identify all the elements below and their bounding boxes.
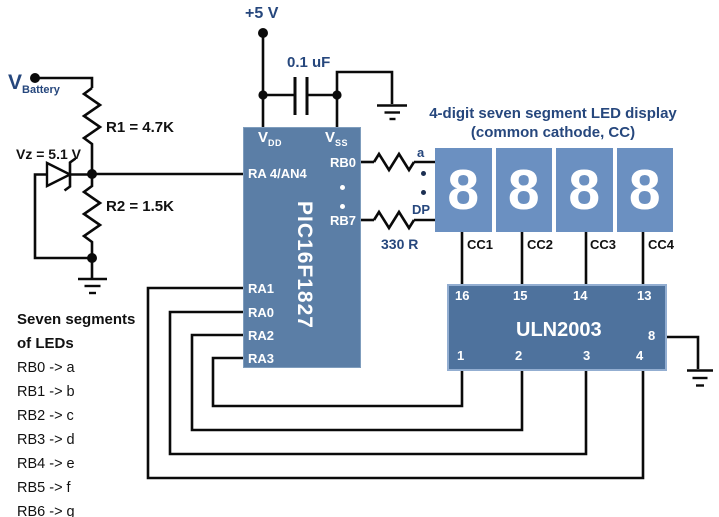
divider-mid-junction-dot bbox=[87, 169, 97, 179]
capacitor-icon bbox=[295, 77, 307, 115]
display-title-line2: (common cathode, CC) bbox=[428, 123, 678, 142]
zener-anode-lead bbox=[35, 175, 92, 259]
zener-label: Vz = 5.1 V bbox=[16, 146, 81, 162]
uln-pin-1: 1 bbox=[457, 348, 464, 363]
plus5v-node-dot bbox=[258, 28, 268, 38]
zener-diode-icon bbox=[47, 159, 92, 191]
segment-ellipsis-dot bbox=[421, 190, 426, 195]
legend-block: Seven segments of LEDs RB0 -> a RB1 -> b… bbox=[17, 308, 135, 517]
divider-bottom-junction-dot bbox=[87, 253, 97, 263]
uln-pin-8: 8 bbox=[648, 328, 655, 343]
uln-pin-13: 13 bbox=[637, 288, 651, 303]
ground-icon-divider bbox=[78, 279, 107, 293]
pic-pin-ra2: RA2 bbox=[248, 328, 274, 343]
vbattery-label: VBattery bbox=[8, 71, 60, 96]
rb-ellipsis-dot bbox=[340, 204, 345, 209]
resistor-r1-icon bbox=[84, 88, 100, 174]
rb-ellipsis-dot bbox=[340, 185, 345, 190]
uln-part-number: ULN2003 bbox=[516, 319, 602, 342]
uln-pin-14: 14 bbox=[573, 288, 587, 303]
r1-label: R1 = 4.7K bbox=[106, 119, 174, 136]
legend-row: RB6 -> g bbox=[17, 500, 135, 517]
r2-label: R2 = 1.5K bbox=[106, 198, 174, 215]
pic-vdd-pin: VDD bbox=[258, 129, 282, 148]
uln-pin-15: 15 bbox=[513, 288, 527, 303]
seven-segment-display: 8 8 8 8 bbox=[435, 148, 673, 232]
legend-row: RB4 -> e bbox=[17, 452, 135, 476]
uln-pin-3: 3 bbox=[583, 348, 590, 363]
segment-ellipsis-dot bbox=[421, 171, 426, 176]
pic-pin-ra3: RA3 bbox=[248, 351, 274, 366]
cap-left-junction-dot bbox=[258, 90, 267, 99]
vss-ground-wire bbox=[337, 72, 392, 127]
cc2-label: CC2 bbox=[527, 237, 553, 252]
display-title-line1: 4-digit seven segment LED display bbox=[428, 104, 678, 123]
circuit-schematic: 8 8 8 8 VDD VSS RA 4/AN4 RB0 RB7 RA1 RA0… bbox=[0, 0, 719, 517]
segment-resistor-label: 330 R bbox=[381, 236, 418, 252]
cc1-label: CC1 bbox=[467, 237, 493, 252]
cc3-label: CC3 bbox=[590, 237, 616, 252]
legend-row: RB2 -> c bbox=[17, 404, 135, 428]
uln-ground-wire bbox=[667, 337, 698, 369]
cap-right-junction-dot bbox=[332, 90, 341, 99]
segment-dp-label: DP bbox=[412, 202, 430, 217]
capacitor-label: 0.1 uF bbox=[287, 54, 330, 71]
legend-heading1: Seven segments bbox=[17, 308, 135, 332]
resistor-r2-icon bbox=[84, 174, 100, 258]
display-digit: 8 bbox=[617, 148, 674, 232]
cc4-label: CC4 bbox=[648, 237, 674, 252]
uln-pin-4: 4 bbox=[636, 348, 643, 363]
uln-pin-16: 16 bbox=[455, 288, 469, 303]
legend-row: RB1 -> b bbox=[17, 380, 135, 404]
legend-row: RB3 -> d bbox=[17, 428, 135, 452]
legend-heading2: of LEDs bbox=[17, 332, 135, 356]
pic-pin-ra1: RA1 bbox=[248, 281, 274, 296]
pic-pin-rb0: RB0 bbox=[330, 155, 355, 170]
display-digit: 8 bbox=[435, 148, 492, 232]
uln-pin-2: 2 bbox=[515, 348, 522, 363]
pic-pin-ra0: RA0 bbox=[248, 305, 274, 320]
display-title: 4-digit seven segment LED display (commo… bbox=[428, 104, 678, 142]
legend-row: RB0 -> a bbox=[17, 356, 135, 380]
resistor-330-dp-icon bbox=[374, 212, 414, 228]
segment-a-label: a bbox=[417, 145, 424, 160]
pic-pin-ra4: RA 4/AN4 bbox=[248, 166, 307, 181]
pic-part-number: PIC16F1827 bbox=[290, 200, 316, 330]
pic-pin-rb7: RB7 bbox=[330, 213, 355, 228]
ground-icon-uln bbox=[687, 371, 713, 386]
resistor-330-a-icon bbox=[374, 154, 414, 170]
pic-vss-pin: VSS bbox=[325, 129, 348, 148]
display-digit: 8 bbox=[496, 148, 553, 232]
display-digit: 8 bbox=[556, 148, 613, 232]
ground-icon-cap bbox=[377, 106, 407, 120]
legend-row: RB5 -> f bbox=[17, 476, 135, 500]
plus5v-label: +5 V bbox=[245, 5, 278, 23]
